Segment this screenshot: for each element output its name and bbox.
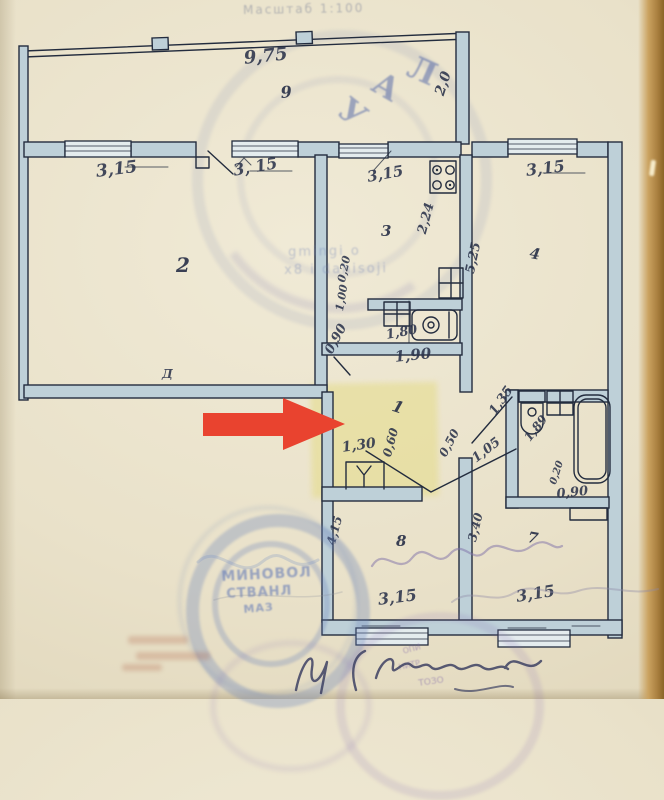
signature-ink (455, 686, 513, 691)
signature-scribble (214, 592, 342, 600)
signature-scribble (452, 588, 658, 602)
signature-scribble (372, 542, 562, 566)
scanned-floor-plan: Масштаб 1:100 (0, 0, 664, 699)
signature-scribble (198, 555, 318, 567)
red-arrow-marker (203, 398, 345, 450)
signature-ink (296, 659, 327, 693)
annotations-layer (0, 0, 664, 699)
signature-ink (353, 651, 541, 690)
